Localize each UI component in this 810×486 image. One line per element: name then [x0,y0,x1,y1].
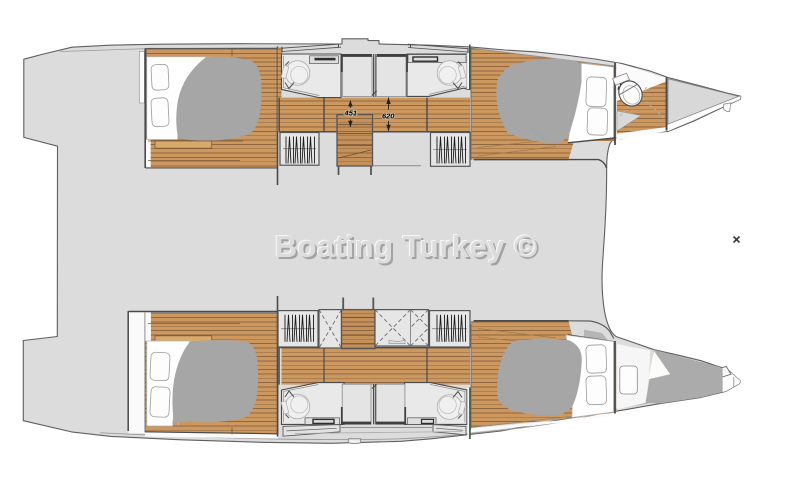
svg-text:Boating Turkey ©: Boating Turkey © [275,229,538,264]
svg-text:451: 451 [344,108,358,117]
svg-text:620: 620 [382,112,395,121]
